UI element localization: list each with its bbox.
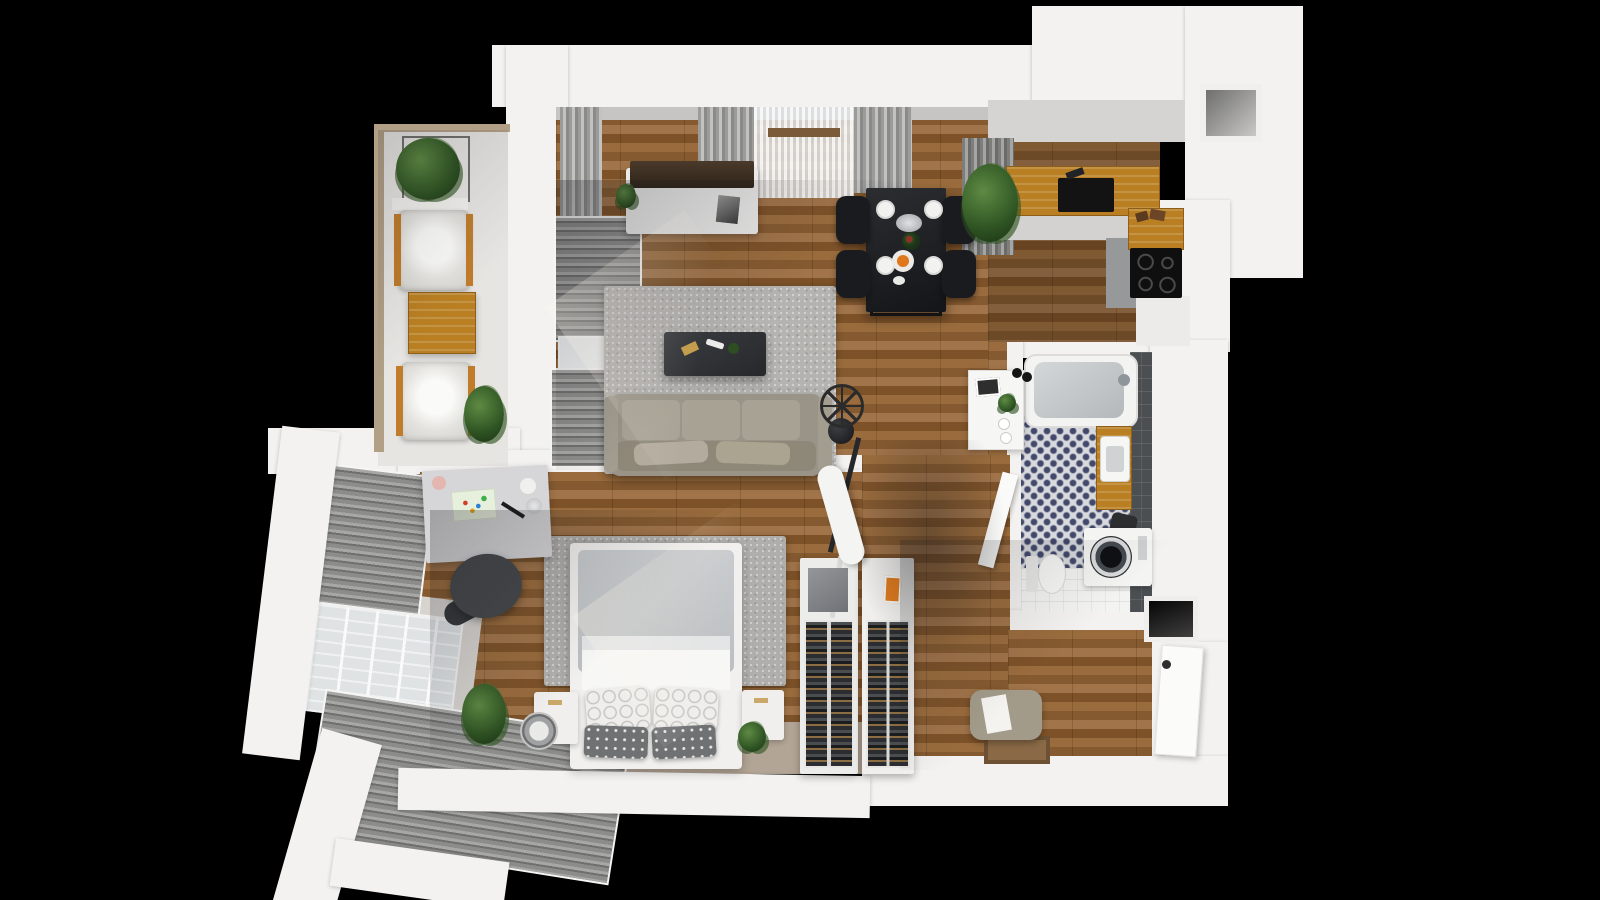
sofa-pillow-left xyxy=(633,440,708,466)
shelf-plant xyxy=(998,394,1016,412)
bathtub-faucet xyxy=(1118,374,1130,386)
tv-photo-frame xyxy=(712,192,743,228)
plant-balcony-bottom xyxy=(464,386,504,442)
bed-pillow-dark-right xyxy=(651,724,717,759)
balcony-chair-bottom xyxy=(400,362,472,440)
toilet-bowl xyxy=(1038,554,1066,594)
shelf-cup-1 xyxy=(998,418,1010,430)
doormat xyxy=(984,736,1050,764)
dining-fruit xyxy=(897,255,909,267)
nightstand-left-handle xyxy=(548,700,562,705)
sofa-seat-1 xyxy=(622,400,680,440)
nightstand-lamp xyxy=(520,712,558,750)
plant-dining xyxy=(962,164,1018,242)
dining-plate-2 xyxy=(924,200,943,219)
dining-plate-4 xyxy=(924,256,943,275)
curtain-window-right xyxy=(854,107,912,193)
dining-chair-1 xyxy=(836,196,870,244)
entry-niche xyxy=(1144,596,1198,642)
washing-machine-door xyxy=(1090,536,1132,578)
sheer-window xyxy=(754,107,854,198)
nightstand-right-handle xyxy=(754,698,768,703)
shelf-bottle-1 xyxy=(1012,368,1022,378)
balcony-chair-top xyxy=(398,210,470,290)
balcony-chair-bottom-rail-left xyxy=(396,366,403,436)
floor-lamp-shade xyxy=(820,384,864,428)
balcony-table xyxy=(408,292,476,354)
desk-map xyxy=(451,488,497,522)
plant-nightstand xyxy=(738,722,766,752)
shoe-tower-right-card xyxy=(883,576,901,604)
window-sill xyxy=(768,128,840,137)
balcony-rail-top xyxy=(374,124,510,132)
coffee-table xyxy=(664,332,766,376)
sofa-pillow-right xyxy=(716,441,791,466)
desk-plate xyxy=(518,476,538,496)
desk-cup xyxy=(432,476,446,490)
dining-napkin xyxy=(893,276,905,285)
sofa-arm-left xyxy=(604,396,618,472)
shoe-tower-right-shelves xyxy=(866,620,910,768)
face-kitchen-cabinets xyxy=(988,100,1185,142)
curtain-living-left xyxy=(560,107,602,223)
bed-sheet xyxy=(582,650,730,690)
shelf-photo-frame xyxy=(975,377,1000,397)
balcony-chair-top-rail-left xyxy=(394,214,401,286)
entry-door-handle xyxy=(1162,660,1171,669)
balcony-chair-top-rail-right xyxy=(466,214,473,286)
dining-bowl xyxy=(896,214,922,232)
kitchen-sink xyxy=(1058,178,1114,212)
sofa-seat-2 xyxy=(682,400,740,440)
shelf-cup-2 xyxy=(1000,432,1012,444)
dining-chair-2 xyxy=(836,250,870,298)
bed-pillow-dark-left xyxy=(583,725,648,759)
shoe-tower-left-shelves xyxy=(804,620,854,768)
desk-knob xyxy=(526,498,542,514)
toilet-tank xyxy=(1026,556,1038,592)
wall-bottom-bedroom xyxy=(398,768,871,818)
kitchen-hob xyxy=(1130,248,1182,298)
kitchen-counter-lower xyxy=(1136,296,1190,346)
plant-bedroom xyxy=(462,684,506,744)
washing-machine-panel xyxy=(1138,536,1147,560)
tv-plant xyxy=(616,184,636,208)
niche-top-right xyxy=(1200,84,1262,142)
bathtub-basin xyxy=(1034,362,1124,418)
dining-flowers xyxy=(902,232,920,250)
coffee-table-plant xyxy=(728,343,739,354)
shoe-tower-left-top xyxy=(808,568,848,612)
balcony-rail-left xyxy=(374,124,384,452)
bed-sheet-fold xyxy=(582,636,730,650)
tv-stand-top xyxy=(630,161,754,188)
dining-chair-4 xyxy=(942,250,976,298)
bathroom-sink-basin xyxy=(1106,446,1124,472)
sofa-seat-3 xyxy=(742,400,800,440)
plant-balcony-top xyxy=(396,138,460,200)
apartment-floor-plan xyxy=(0,0,1600,900)
shelf-bottle-2 xyxy=(1022,372,1032,382)
dining-plate-1 xyxy=(876,200,895,219)
